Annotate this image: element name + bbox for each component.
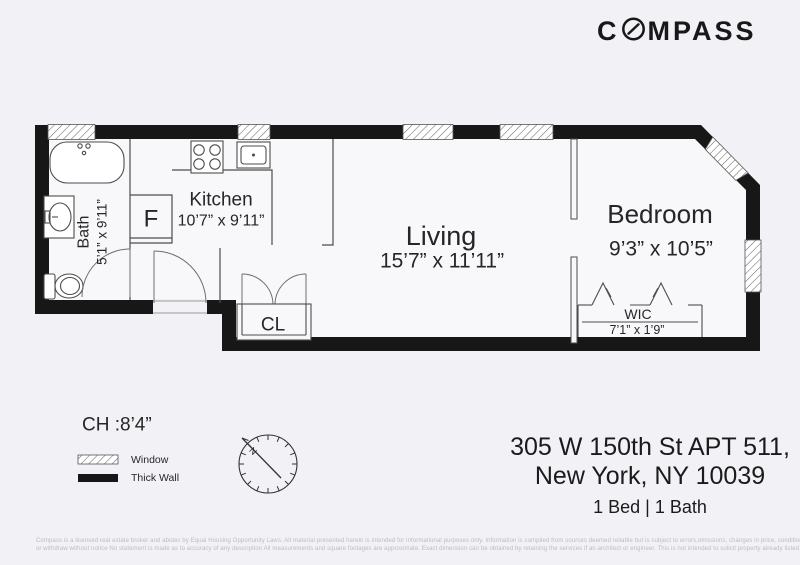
address-line-2: New York, NY 10039 (510, 462, 790, 491)
window-hatch-living-2 (500, 125, 553, 140)
window-hatch-bath (48, 125, 95, 140)
disclaimer-line-2: or withdraw without notice No statement … (36, 545, 776, 553)
label-wic: WIC (624, 306, 651, 322)
legend-thick-wall-label: Thick Wall (131, 472, 179, 484)
label-closet-cl: CL (261, 315, 285, 336)
legend: Window Thick Wall (78, 454, 179, 484)
legend-window-label: Window (131, 454, 169, 466)
window-hatch-living-1 (403, 125, 453, 140)
compass-rose: N (239, 435, 297, 493)
compass-needle (242, 438, 281, 478)
label-bath-dims: 5’1” x 9’11” (95, 199, 110, 265)
label-bath: Bath (76, 216, 93, 249)
window-hatch-bedroom-right (745, 240, 761, 292)
compass-north-label: N (247, 445, 259, 457)
label-living: Living (406, 221, 477, 251)
legend-thick-wall-swatch (78, 474, 118, 482)
ceiling-height: CH :8’4” (82, 415, 152, 436)
label-fridge: F (144, 206, 159, 233)
window-hatch-kitchen (238, 125, 270, 140)
disclaimer: Compass is a licensed real estate broker… (36, 537, 776, 553)
label-bedroom: Bedroom (607, 199, 713, 229)
label-wic-dims: 7’1” x 1’9” (610, 323, 665, 337)
label-kitchen-dims: 10’7” x 9’11” (178, 213, 265, 230)
label-living-dims: 15’7” x 11’11” (380, 250, 504, 273)
legend-window-swatch (78, 455, 118, 464)
toilet-tank (44, 274, 55, 299)
label-kitchen: Kitchen (189, 190, 252, 211)
label-bedroom-dims: 9’3” x 10’5” (609, 238, 713, 261)
disclaimer-line-1: Compass is a licensed real estate broker… (36, 537, 776, 545)
address-line-1: 305 W 150th St APT 511, (510, 433, 790, 462)
listing-info: 305 W 150th St APT 511, New York, NY 100… (510, 433, 790, 520)
bed-bath-summary: 1 Bed | 1 Bath (510, 494, 790, 520)
